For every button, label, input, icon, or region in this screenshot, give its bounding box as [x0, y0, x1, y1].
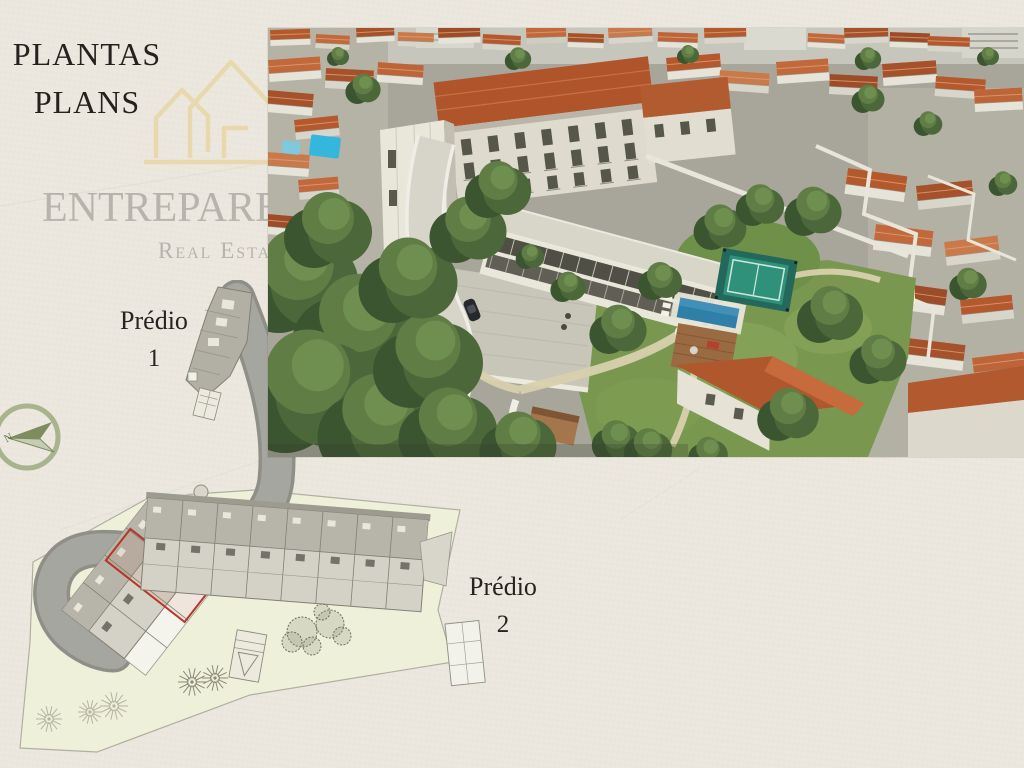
page-subtitle: PLANS [0, 78, 174, 126]
predio-1-number: 1 [99, 344, 209, 374]
predio-2-number: 2 [448, 610, 558, 640]
title-block: PLANTAS PLANS [0, 30, 174, 126]
neighbor-pool [309, 134, 341, 158]
aerial-photo-render [268, 28, 1024, 457]
aerial-photo [268, 28, 1024, 457]
existing-building-wing [640, 77, 736, 164]
predio-2-label-block: Prédio 2 [448, 572, 558, 640]
compass-north-label: N [2, 431, 15, 445]
page-title: PLANTAS [0, 30, 174, 78]
predio-2-label: Prédio [469, 572, 537, 601]
predio-1-label-block: Prédio 1 [99, 306, 209, 374]
predio-1-label: Prédio [120, 306, 188, 335]
compass-icon: N [0, 406, 58, 468]
